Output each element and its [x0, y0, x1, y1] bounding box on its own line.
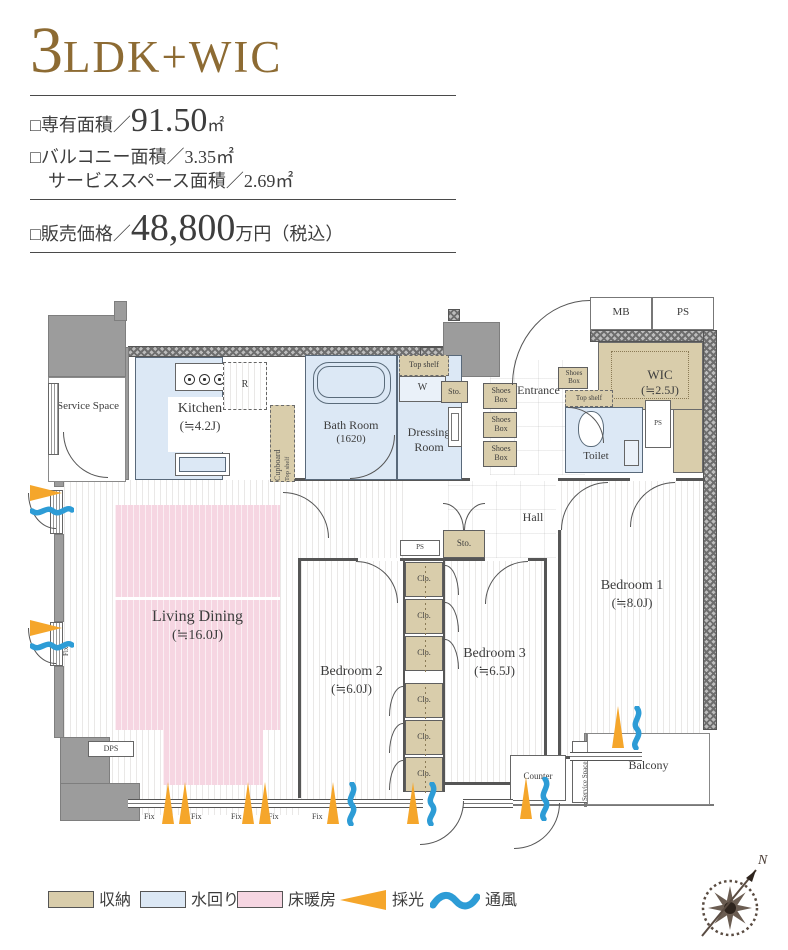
vanity: [448, 407, 462, 447]
vanity-inner: [451, 413, 459, 441]
compass-north-label: N: [757, 853, 768, 868]
fix-label: Fix: [191, 812, 202, 822]
price-label: □販売価格／: [30, 224, 131, 244]
legend: 収納 水回り 床暖房 採光 通風: [45, 885, 605, 920]
daylight-icon: [520, 777, 532, 819]
legend-swatch-water: [140, 891, 186, 908]
legend-label-heating: 床暖房: [288, 891, 336, 911]
top-shelf-toilet: Top shelf: [565, 390, 613, 407]
ventilation-icon: [629, 706, 643, 750]
exclusive-area-line: □専有面積／91.50㎡: [30, 102, 470, 140]
ventilation-icon: [537, 777, 551, 821]
bedroom1-label: Bedroom 1 (≒8.0J): [561, 577, 703, 611]
sink-basin: [179, 457, 226, 472]
wall: [544, 558, 547, 782]
daylight-icon: [242, 782, 254, 824]
divider-3: [30, 252, 456, 253]
wall-pier-left-3: [54, 666, 64, 738]
daylight-icon: [327, 782, 339, 824]
toilet-label: Toilet: [566, 450, 626, 464]
service-area-text: サービススペース面積／2.69㎡: [48, 171, 293, 191]
title-number: 3: [30, 14, 63, 87]
ventilation-icon: [430, 889, 480, 913]
bathtub-inner: [317, 366, 385, 398]
storage-dressing: Sto.: [441, 381, 468, 403]
divider-1: [30, 95, 456, 96]
legend-label-storage: 収納: [99, 891, 131, 911]
daylight-icon: [179, 782, 191, 824]
wall-hatch-mbps: [590, 330, 717, 342]
storage-hall: Sto.: [443, 530, 485, 558]
wall-mass-topleft-stub: [114, 301, 127, 321]
wall-hatch-right: [703, 330, 717, 730]
closet: Clo.: [405, 562, 443, 597]
window: [48, 383, 59, 455]
legend-label-water: 水回り: [191, 891, 239, 911]
legend-swatch-heating: [237, 891, 283, 908]
cupboard: Cupboard Top shelf: [270, 405, 295, 482]
daylight-icon: [30, 485, 62, 501]
shoes-box: Shoes Box: [483, 412, 517, 438]
balcony-area-line: □バルコニー面積／3.35㎡: [30, 143, 234, 169]
floor-plan: Service Space Kitchen (≒4.2J) R Cupboard…: [28, 285, 754, 855]
floor-plan-page: { "header": { "title_num": "3", "title_s…: [0, 0, 788, 950]
daylight-icon: [612, 706, 624, 748]
dps-box: DPS: [88, 741, 134, 757]
window: [463, 799, 513, 808]
closet-fold-line: [425, 563, 426, 598]
legend-label-ventilation: 通風: [485, 891, 517, 911]
window: [570, 752, 642, 761]
kitchen-sink: [175, 453, 230, 476]
room-wic-lower: [673, 409, 703, 473]
divider-2: [30, 199, 456, 200]
area-value: 91.50: [131, 102, 208, 139]
fridge-space: R: [223, 362, 267, 410]
pipe-space-hall: PS: [400, 540, 440, 556]
hall-label: Hall: [508, 510, 558, 525]
fridge-label: R: [224, 379, 266, 392]
meter-box: MB: [590, 297, 652, 330]
daylight-icon: [340, 890, 386, 910]
room-balcony: Balcony: [587, 733, 710, 805]
area-label: □専有面積／: [30, 115, 131, 135]
bathtub: [313, 362, 391, 404]
ventilation-icon: [424, 782, 438, 826]
service-space-label: Service Space: [49, 400, 127, 414]
pipe-space-toilet: PS: [645, 400, 671, 448]
wall: [298, 558, 358, 561]
burner-icon: [199, 374, 210, 385]
legend-swatch-storage: [48, 891, 94, 908]
closet-fold-line: [425, 600, 426, 635]
ventilation-icon: [30, 638, 74, 652]
wall: [558, 530, 561, 758]
daylight-icon: [30, 620, 62, 636]
plan-type-title: 3LDK+WIC: [30, 18, 282, 84]
bedroom3-label: Bedroom 3 (≒6.5J): [445, 645, 544, 679]
shoes-box: Shoes Box: [483, 441, 517, 467]
ventilation-icon: [344, 782, 358, 826]
floor-heating-tab: [163, 730, 263, 785]
washer-label: W: [400, 382, 445, 395]
burner-icon: [184, 374, 195, 385]
bedroom2-label: Bedroom 2 (≒6.0J): [300, 663, 403, 697]
top-shelf-dressing: Top shelf: [399, 355, 449, 376]
cupboard-label: Cupboard: [273, 408, 282, 481]
closet: Clo.: [405, 720, 443, 755]
cupboard-sublabel: Top shelf: [284, 408, 291, 481]
daylight-icon: [407, 782, 419, 824]
closet-fold-line: [425, 637, 426, 672]
closet: Clo.: [405, 636, 443, 671]
fix-label: Fix: [144, 812, 155, 822]
title-suffix: LDK+WIC: [63, 32, 282, 82]
price-unit: 万円（税込）: [235, 224, 343, 244]
area-unit: ㎡: [207, 116, 224, 135]
daylight-icon: [162, 782, 174, 824]
balcony-area-text: □バルコニー面積／3.35㎡: [30, 147, 234, 167]
wall: [558, 478, 630, 481]
wall: [676, 478, 705, 481]
closet: Clo.: [405, 683, 443, 718]
service-area-line: サービススペース面積／2.69㎡: [48, 167, 293, 193]
legend-label-daylight: 採光: [392, 891, 424, 911]
closet: Clo.: [405, 599, 443, 634]
fix-label: Fix: [312, 812, 323, 822]
closet-fold-line: [425, 684, 426, 719]
wic-label: WIC (≒2.5J): [620, 367, 700, 398]
daylight-icon: [259, 782, 271, 824]
compass-icon: N: [690, 848, 775, 943]
washer-space: W: [399, 376, 446, 402]
wall-pier-left-2: [54, 534, 64, 622]
ventilation-icon: [30, 503, 74, 517]
price-value: 48,800: [131, 207, 236, 249]
wall-mass-topleft: [48, 315, 126, 377]
price-line: □販売価格／48,800万円（税込）: [30, 206, 343, 250]
toilet-cabinet: [624, 440, 639, 466]
pipe-space-top: PS: [652, 297, 714, 330]
living-dining-label: Living Dining (≒16.0J): [115, 607, 280, 645]
fix-label: Fix: [231, 812, 242, 822]
closet-fold-line: [425, 721, 426, 756]
floor-heating-divider: [115, 597, 280, 600]
wall: [528, 558, 545, 561]
wall-hatch-square: [448, 309, 460, 321]
entrance-door-arc: [512, 300, 590, 385]
